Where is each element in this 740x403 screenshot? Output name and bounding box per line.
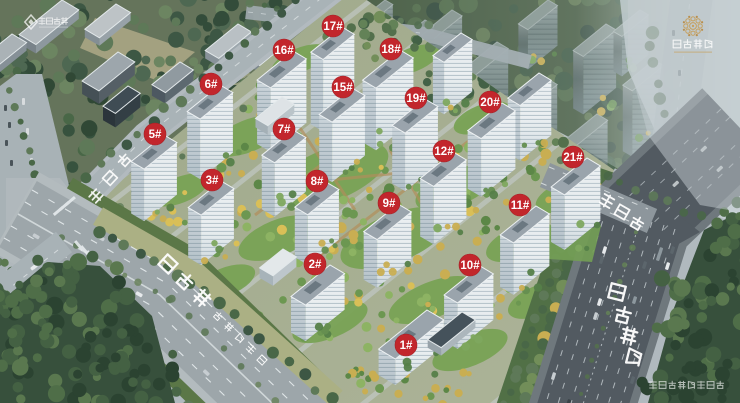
svg-text:3#: 3# bbox=[206, 175, 219, 187]
svg-text:21#: 21# bbox=[563, 152, 583, 164]
svg-text:11#: 11# bbox=[511, 200, 530, 212]
svg-text:6#: 6# bbox=[205, 79, 218, 91]
svg-text:19#: 19# bbox=[406, 93, 426, 105]
svg-text:9#: 9# bbox=[383, 198, 396, 210]
svg-text:5#: 5# bbox=[149, 129, 162, 141]
svg-text:2#: 2# bbox=[309, 259, 322, 271]
svg-text:20#: 20# bbox=[480, 97, 500, 109]
svg-text:12#: 12# bbox=[434, 146, 454, 158]
svg-text:15#: 15# bbox=[333, 82, 353, 94]
svg-text:17#: 17# bbox=[323, 21, 343, 33]
svg-text:10#: 10# bbox=[460, 260, 480, 272]
svg-text:16#: 16# bbox=[274, 45, 294, 57]
svg-text:8#: 8# bbox=[311, 176, 324, 188]
svg-text:18#: 18# bbox=[381, 44, 401, 56]
svg-text:1#: 1# bbox=[400, 340, 413, 352]
svg-text:7#: 7# bbox=[278, 124, 291, 136]
